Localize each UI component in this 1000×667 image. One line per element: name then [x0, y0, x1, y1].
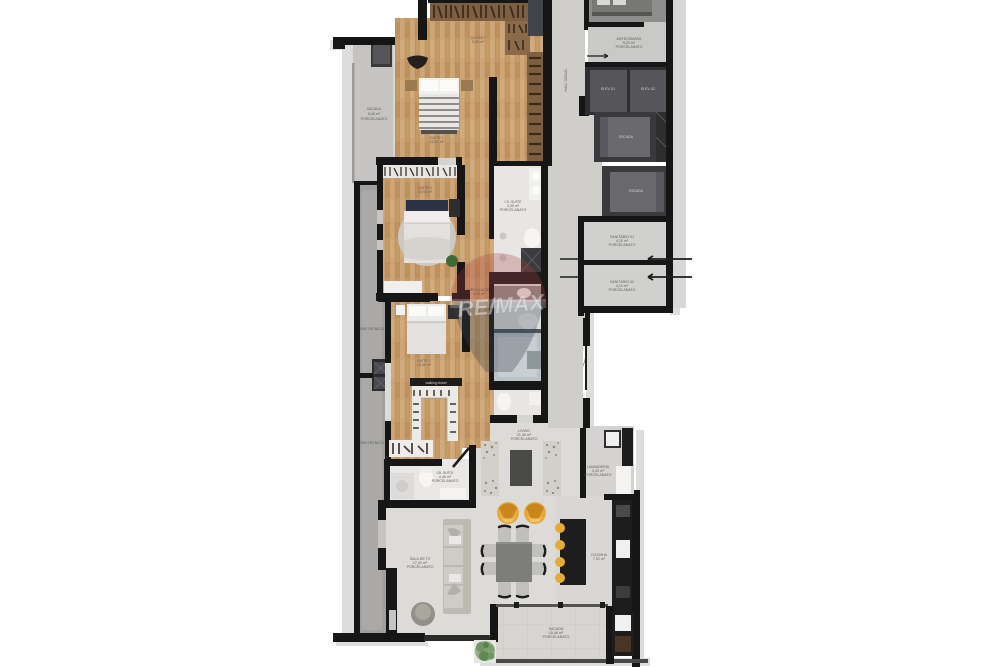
svg-text:walking closet: walking closet — [425, 381, 446, 385]
svg-text:12,92 m²: 12,92 m² — [430, 140, 445, 144]
svg-text:ESCADA: ESCADA — [629, 189, 644, 193]
svg-text:PORCELANATO: PORCELANATO — [609, 243, 636, 247]
svg-text:PORCELANATO: PORCELANATO — [511, 437, 538, 441]
svg-text:10,93 m²: 10,93 m² — [418, 190, 433, 194]
svg-text:HALL SOCIAL: HALL SOCIAL — [564, 68, 568, 91]
svg-text:PAV.TÉCNICO: PAV.TÉCNICO — [360, 440, 384, 445]
svg-text:PORCELANATO: PORCELANATO — [616, 45, 643, 49]
svg-text:PAV.TÉCNICO: PAV.TÉCNICO — [360, 326, 384, 331]
svg-text:ELEV. 02: ELEV. 02 — [641, 87, 655, 91]
svg-text:3,30 m²: 3,30 m² — [472, 40, 485, 44]
svg-text:PORCELANATO: PORCELANATO — [407, 565, 434, 569]
svg-text:PORCELANATO: PORCELANATO — [500, 208, 527, 212]
svg-text:PORCELANATO: PORCELANATO — [585, 473, 612, 477]
svg-text:PORCELANATO: PORCELANATO — [361, 117, 388, 121]
svg-text:PORCELANATO: PORCELANATO — [432, 479, 459, 483]
svg-text:8,46 m²: 8,46 m² — [368, 112, 381, 116]
svg-text:10,05 m²: 10,05 m² — [417, 363, 432, 367]
svg-text:ESCADA: ESCADA — [619, 135, 634, 139]
svg-text:7,02 m²: 7,02 m² — [593, 557, 606, 561]
svg-text:PORCELANATO: PORCELANATO — [609, 288, 636, 292]
svg-text:SACADA: SACADA — [367, 107, 382, 111]
svg-text:ELEV. 01: ELEV. 01 — [601, 87, 615, 91]
svg-text:PORCELANATO: PORCELANATO — [543, 635, 570, 639]
